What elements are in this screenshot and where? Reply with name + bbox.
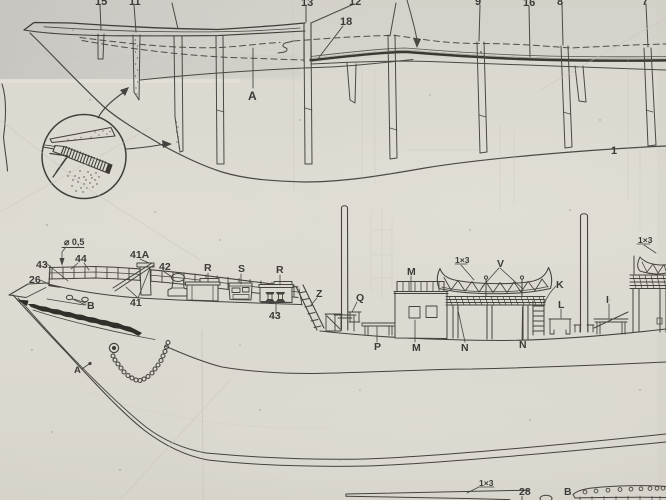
- svg-text:43: 43: [36, 259, 48, 271]
- svg-text:18: 18: [340, 16, 352, 28]
- svg-text:8: 8: [557, 0, 563, 8]
- svg-text:41: 41: [130, 297, 142, 309]
- svg-text:44: 44: [75, 253, 87, 265]
- svg-text:26: 26: [29, 274, 41, 286]
- svg-text:M: M: [412, 342, 421, 354]
- svg-text:11: 11: [129, 0, 141, 8]
- svg-text:15: 15: [95, 0, 107, 8]
- svg-text:R: R: [204, 262, 212, 274]
- svg-text:I: I: [606, 294, 609, 306]
- svg-text:A: A: [74, 365, 81, 376]
- svg-text:R: R: [276, 264, 284, 276]
- svg-text:N: N: [461, 342, 469, 354]
- svg-text:P: P: [374, 341, 381, 353]
- svg-text:42: 42: [159, 261, 171, 273]
- svg-text:A: A: [248, 89, 257, 103]
- svg-text:1×3: 1×3: [638, 235, 653, 245]
- svg-text:13: 13: [301, 0, 313, 9]
- svg-text:N: N: [519, 339, 527, 351]
- svg-text:9: 9: [475, 0, 481, 8]
- svg-text:12: 12: [349, 0, 361, 8]
- svg-text:K: K: [556, 279, 564, 291]
- svg-text:S: S: [238, 263, 245, 275]
- svg-text:⌀ 0,5: ⌀ 0,5: [64, 237, 84, 247]
- svg-text:43: 43: [269, 310, 281, 322]
- svg-text:1×3: 1×3: [479, 478, 494, 488]
- svg-text:M: M: [407, 266, 416, 278]
- svg-text:B: B: [87, 300, 95, 312]
- svg-text:16: 16: [523, 0, 535, 9]
- svg-text:1: 1: [611, 145, 617, 157]
- svg-text:B: B: [564, 486, 572, 498]
- svg-text:L: L: [558, 299, 565, 311]
- svg-text:7: 7: [642, 0, 648, 8]
- svg-text:28: 28: [519, 486, 531, 498]
- svg-text:1×3: 1×3: [455, 255, 470, 265]
